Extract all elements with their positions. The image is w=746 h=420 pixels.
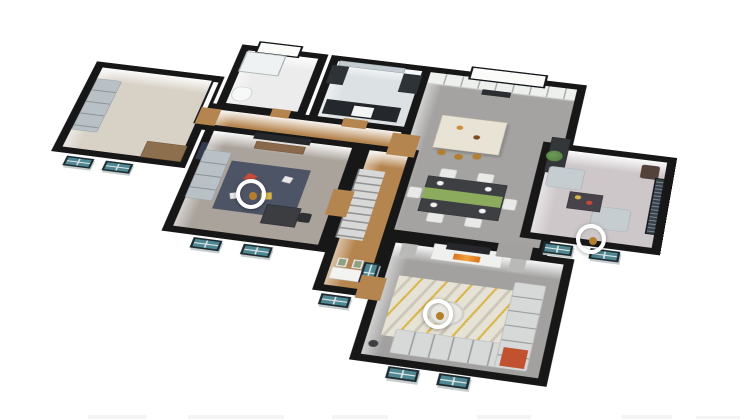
floor-plan-3d-model — [0, 20, 746, 420]
dining-chair — [463, 217, 482, 228]
window-tv-room-south-1 — [189, 237, 222, 251]
bottom-edge-artifact — [477, 415, 531, 419]
dining-chair — [501, 198, 518, 211]
bottom-edge-artifact — [88, 415, 146, 419]
bottom-edge-artifact — [332, 415, 388, 419]
throw-blanket — [499, 347, 528, 369]
dining-chair — [439, 168, 458, 179]
dining-chair — [476, 173, 495, 184]
bottom-edge-artifact — [696, 416, 740, 419]
window-tv-room-south-2 — [240, 244, 273, 258]
floor-plan-canvas[interactable] — [0, 0, 746, 420]
camera-marker-dot — [249, 192, 257, 200]
window-bedroom-south-2 — [101, 161, 133, 174]
dining-chair — [425, 212, 444, 223]
camera-marker-dot — [436, 312, 444, 320]
window-hallway-south — [318, 293, 352, 308]
camera-marker-dot — [589, 237, 597, 245]
bottom-edge-artifact — [188, 415, 284, 419]
window-bedroom-south-1 — [62, 156, 94, 169]
camera-marker-living-room[interactable] — [423, 299, 453, 329]
camera-marker-den[interactable] — [576, 224, 606, 254]
camera-marker-tv-room[interactable] — [236, 179, 266, 209]
bottom-edge-artifact — [622, 415, 672, 419]
den-armchair — [545, 166, 586, 191]
